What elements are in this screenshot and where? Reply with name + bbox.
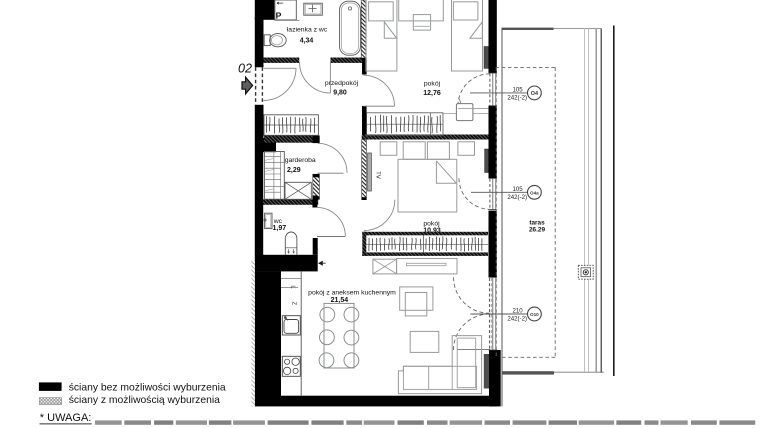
- svg-text:ściany bez możliwości wyburzen: ściany bez możliwości wyburzenia: [69, 383, 226, 394]
- svg-text:TV: TV: [375, 171, 381, 179]
- svg-text:O4: O4: [531, 91, 538, 97]
- svg-text:pokój: pokój: [424, 81, 441, 88]
- svg-text:przedpokój: przedpokój: [325, 80, 359, 87]
- svg-text:242(-2): 242(-2): [507, 194, 527, 201]
- svg-text:26.29: 26.29: [529, 226, 545, 233]
- svg-text:1,97: 1,97: [272, 225, 286, 232]
- svg-text:12,76: 12,76: [423, 90, 441, 97]
- svg-text:242(-2): 242(-2): [507, 95, 527, 102]
- svg-text:9,80: 9,80: [333, 90, 347, 97]
- svg-text:105: 105: [513, 86, 524, 93]
- svg-text:Z: Z: [290, 301, 296, 305]
- svg-text:P: P: [276, 10, 282, 20]
- svg-text:* UWAGA:: * UWAGA:: [40, 412, 92, 424]
- svg-text:łazienka z wc: łazienka z wc: [287, 26, 328, 33]
- svg-text:O10: O10: [530, 312, 539, 317]
- svg-text:ściany z możliwością wyburzeni: ściany z możliwością wyburzenia: [69, 395, 220, 406]
- svg-text:2,29: 2,29: [287, 167, 301, 174]
- svg-text:105: 105: [513, 186, 524, 193]
- svg-text:4,34: 4,34: [300, 38, 314, 45]
- svg-text:242(-2): 242(-2): [507, 316, 527, 323]
- svg-text:wc: wc: [273, 218, 283, 225]
- svg-text:garderoba: garderoba: [285, 157, 316, 164]
- svg-text:pokój z aneksem kuchennym: pokój z aneksem kuchennym: [308, 289, 396, 296]
- svg-text:210: 210: [513, 308, 524, 315]
- svg-text:O4a: O4a: [530, 190, 539, 195]
- svg-text:02: 02: [238, 62, 252, 76]
